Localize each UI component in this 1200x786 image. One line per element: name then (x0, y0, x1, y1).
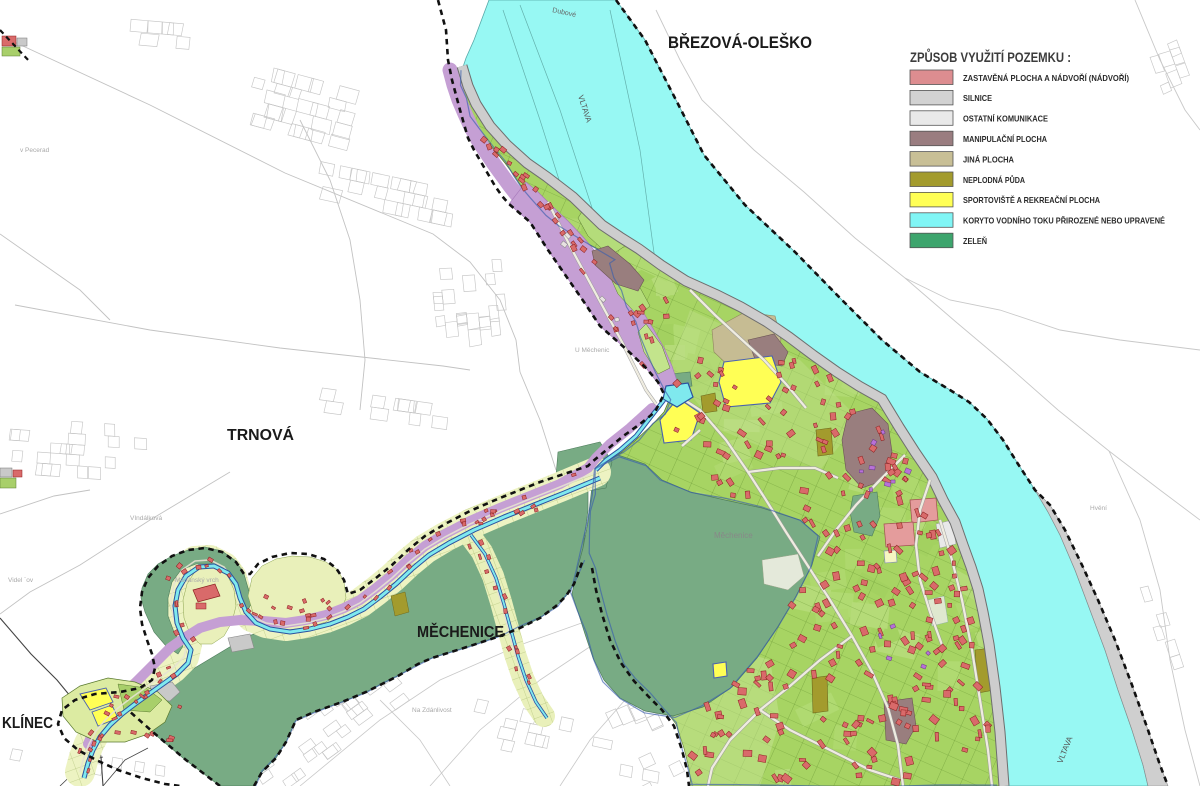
svg-text:NEPLODNÁ PŮDA: NEPLODNÁ PŮDA (963, 174, 1025, 185)
svg-text:Na Zdánlivost: Na Zdánlivost (412, 707, 452, 714)
svg-text:Hvění: Hvění (1090, 505, 1107, 512)
svg-text:SILNICE: SILNICE (963, 93, 992, 103)
svg-text:Měchenice: Měchenice (714, 531, 753, 540)
svg-text:BŘEZOVÁ-OLEŠKO: BŘEZOVÁ-OLEŠKO (668, 33, 812, 52)
svg-text:Mariánský vrch: Mariánský vrch (175, 577, 219, 584)
svg-text:OSTATNÍ KOMUNIKACE: OSTATNÍ KOMUNIKACE (963, 113, 1048, 124)
svg-text:U Měchenic: U Měchenic (575, 347, 610, 354)
svg-text:SPORTOVIŠTĚ A REKREAČNÍ PLOCHA: SPORTOVIŠTĚ A REKREAČNÍ PLOCHA (963, 194, 1100, 205)
svg-text:TRNOVÁ: TRNOVÁ (227, 425, 294, 444)
svg-text:KORYTO VODNÍHO TOKU PŘIROZENÉ: KORYTO VODNÍHO TOKU PŘIROZENÉ NEBO UPRAV… (963, 215, 1165, 226)
svg-text:VIndálková: VIndálková (130, 515, 163, 522)
svg-text:v Pecerad: v Pecerad (20, 147, 50, 154)
svg-text:KLÍNEC: KLÍNEC (2, 715, 53, 732)
svg-text:JINÁ PLOCHA: JINÁ PLOCHA (963, 153, 1014, 164)
svg-text:ZELEŇ: ZELEŇ (963, 235, 987, 246)
svg-text:ZPŮSOB VYUŽITÍ POZEMKU :: ZPŮSOB VYUŽITÍ POZEMKU : (910, 49, 1071, 65)
svg-text:MANIPULAČNÍ PLOCHA: MANIPULAČNÍ PLOCHA (963, 133, 1047, 144)
svg-text:Videl ´ov: Videl ´ov (8, 577, 34, 584)
svg-text:MĚCHENICE: MĚCHENICE (417, 622, 504, 641)
svg-text:ZASTAVĚNÁ PLOCHA A NÁDVOŘÍ (NÁ: ZASTAVĚNÁ PLOCHA A NÁDVOŘÍ (NÁDVOŘÍ) (963, 72, 1129, 83)
